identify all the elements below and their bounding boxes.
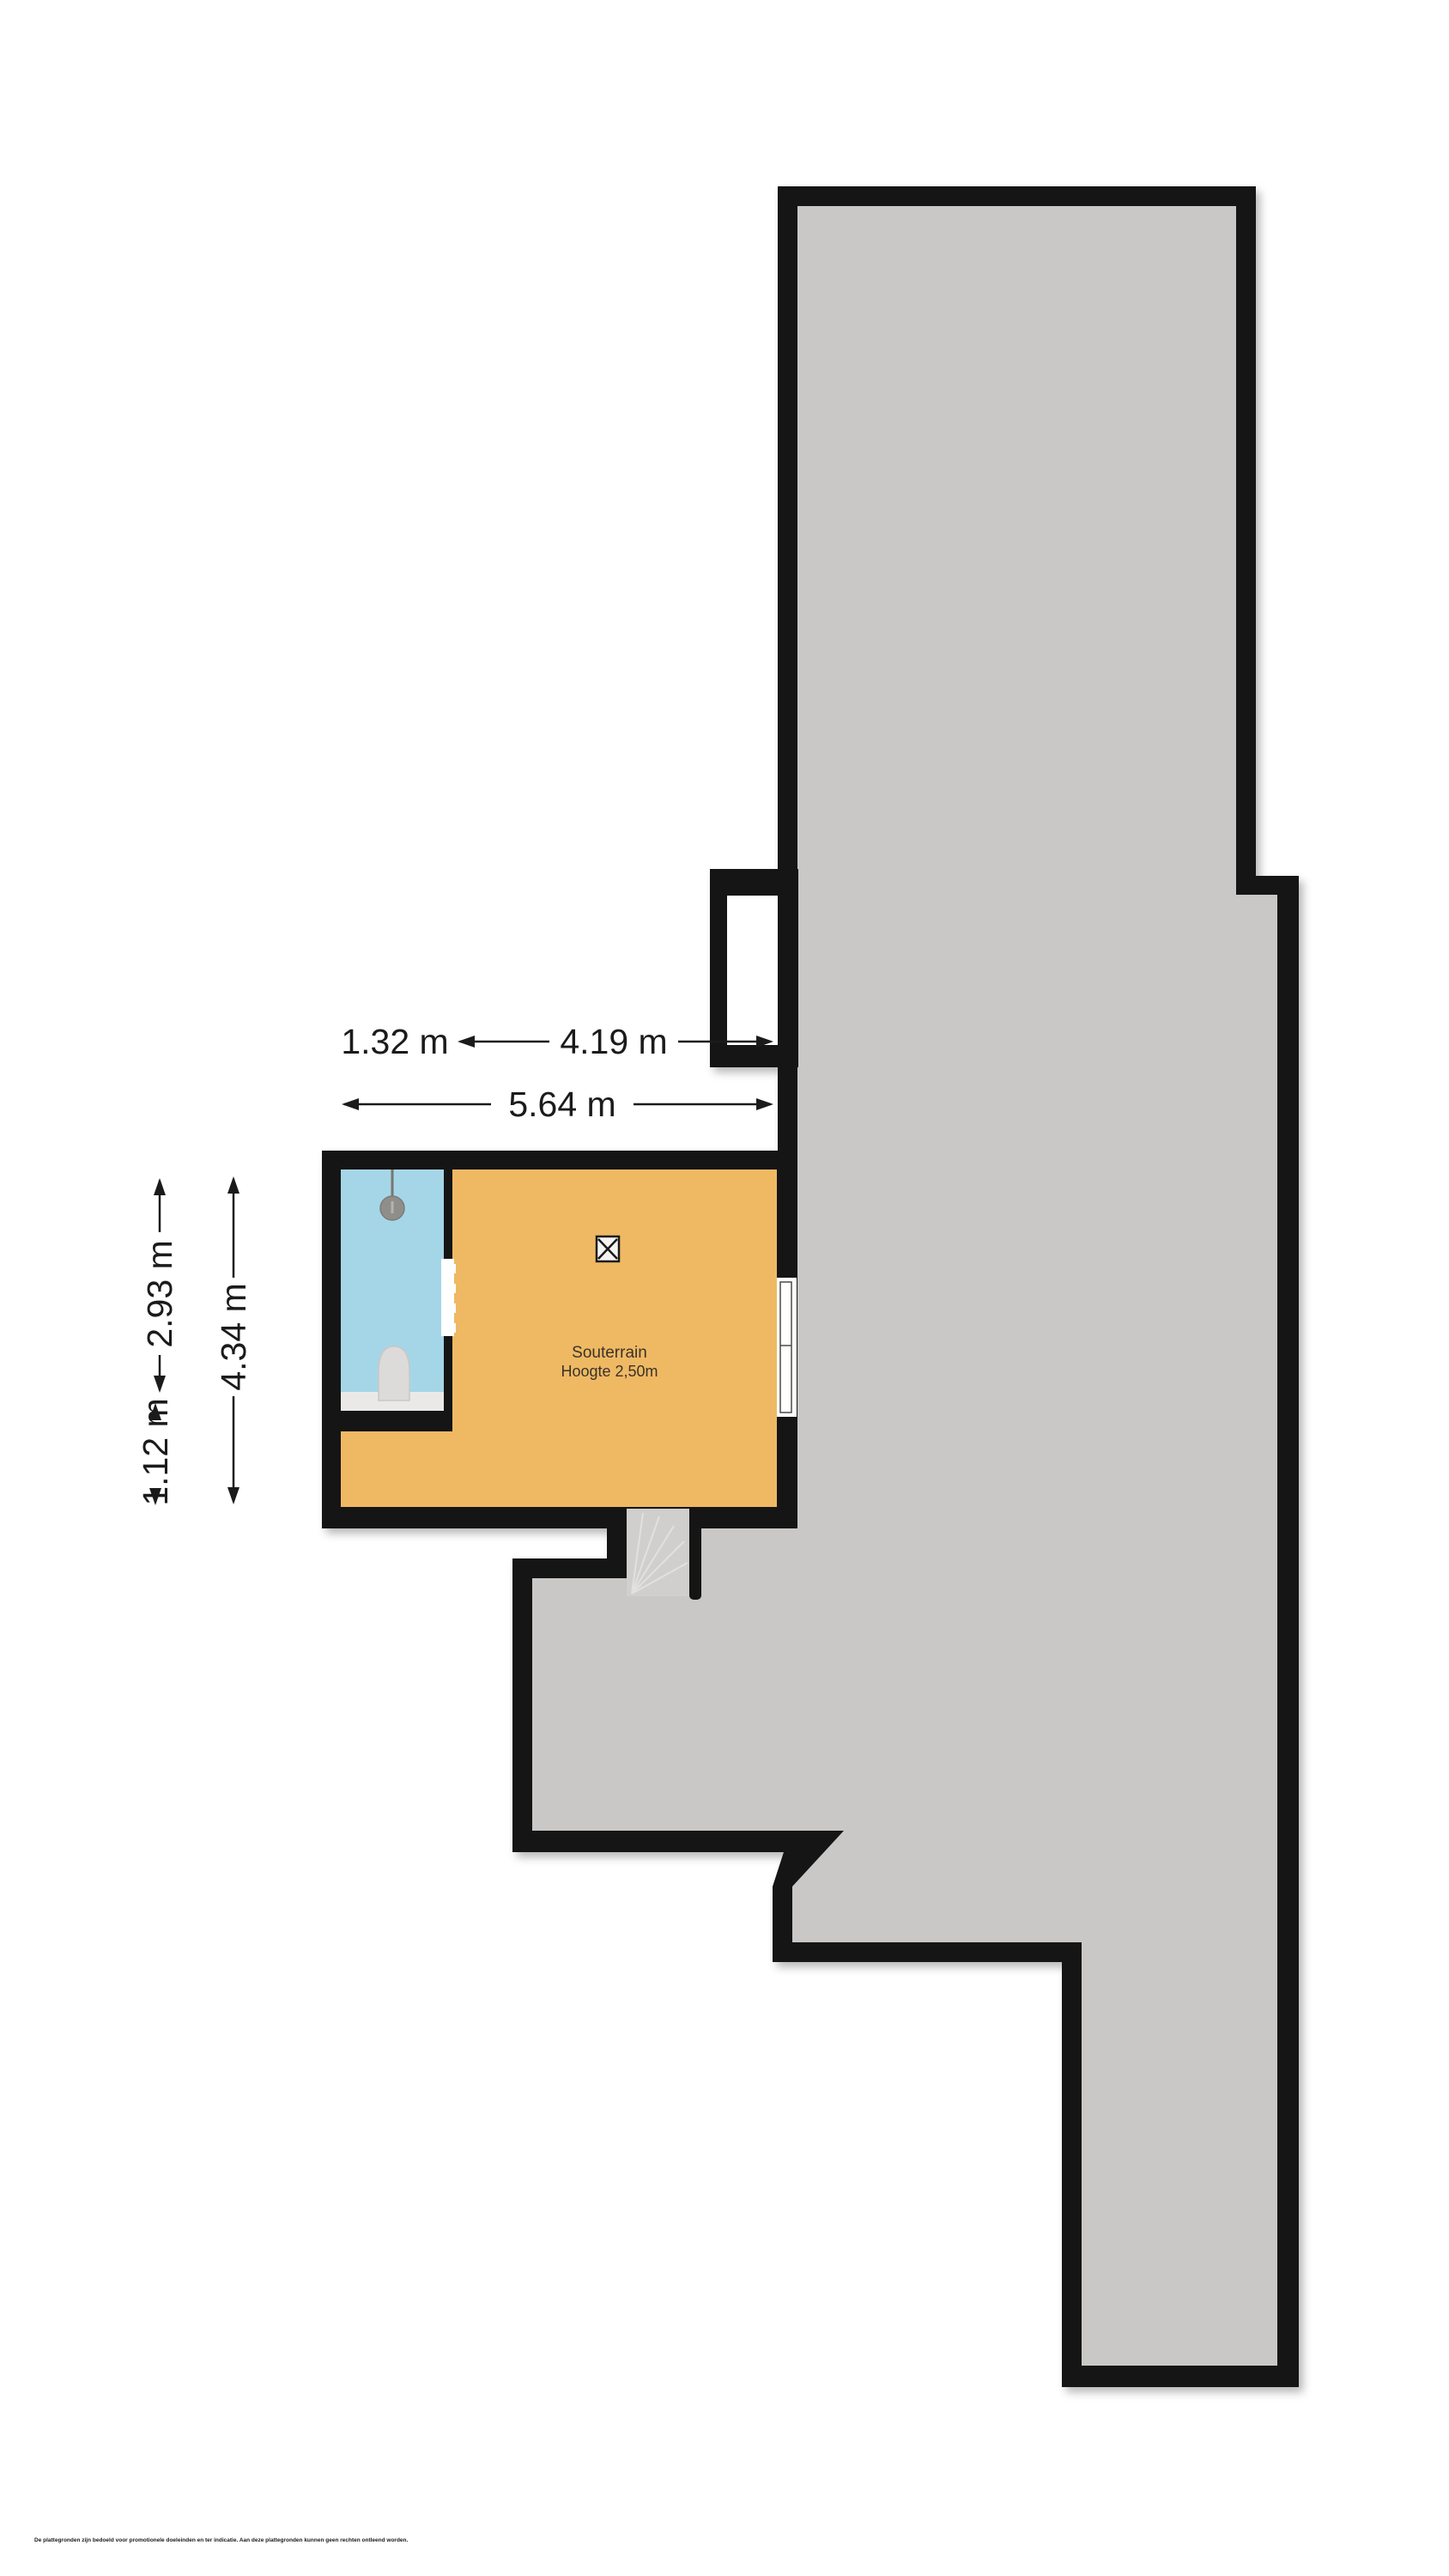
light-shaft-void — [727, 896, 778, 1045]
room-height-label: Hoogte 2,50m — [561, 1363, 658, 1380]
dim-arrowhead-up — [227, 1176, 239, 1194]
ventilation-x-icon — [597, 1236, 619, 1261]
stair-wall-stub — [689, 1508, 701, 1600]
bathroom-bottom-wall — [341, 1411, 452, 1431]
dim-arrowhead-right — [756, 1098, 773, 1110]
dim-height-total: 4.34 m — [214, 1283, 253, 1390]
room-name-label: Souterrain — [572, 1344, 647, 1362]
toilet-icon — [379, 1346, 409, 1400]
dim-arrowhead-down — [227, 1487, 239, 1504]
dim-width-total: 5.64 m — [508, 1084, 615, 1124]
floorplan-canvas: Souterrain Hoogte 2,50m 1.32 m 4.19 m 5.… — [0, 0, 1449, 2576]
dim-arrowhead-left — [342, 1098, 359, 1110]
dim-arrowhead-up — [154, 1178, 166, 1195]
dim-arrowhead-left — [458, 1036, 475, 1048]
dim-height-upper: 2.93 m — [140, 1240, 179, 1347]
dim-width-right: 4.19 m — [560, 1022, 667, 1061]
floorplan-page: Souterrain Hoogte 2,50m 1.32 m 4.19 m 5.… — [0, 0, 1449, 2576]
dim-width-left: 1.32 m — [341, 1022, 448, 1061]
stairs — [627, 1509, 689, 1596]
footer-disclaimer: De plattegronden zijn bedoeld voor promo… — [34, 2537, 409, 2543]
building-footprint — [322, 186, 1299, 2387]
window — [777, 1278, 797, 1417]
dim-arrowhead-down — [154, 1376, 166, 1393]
